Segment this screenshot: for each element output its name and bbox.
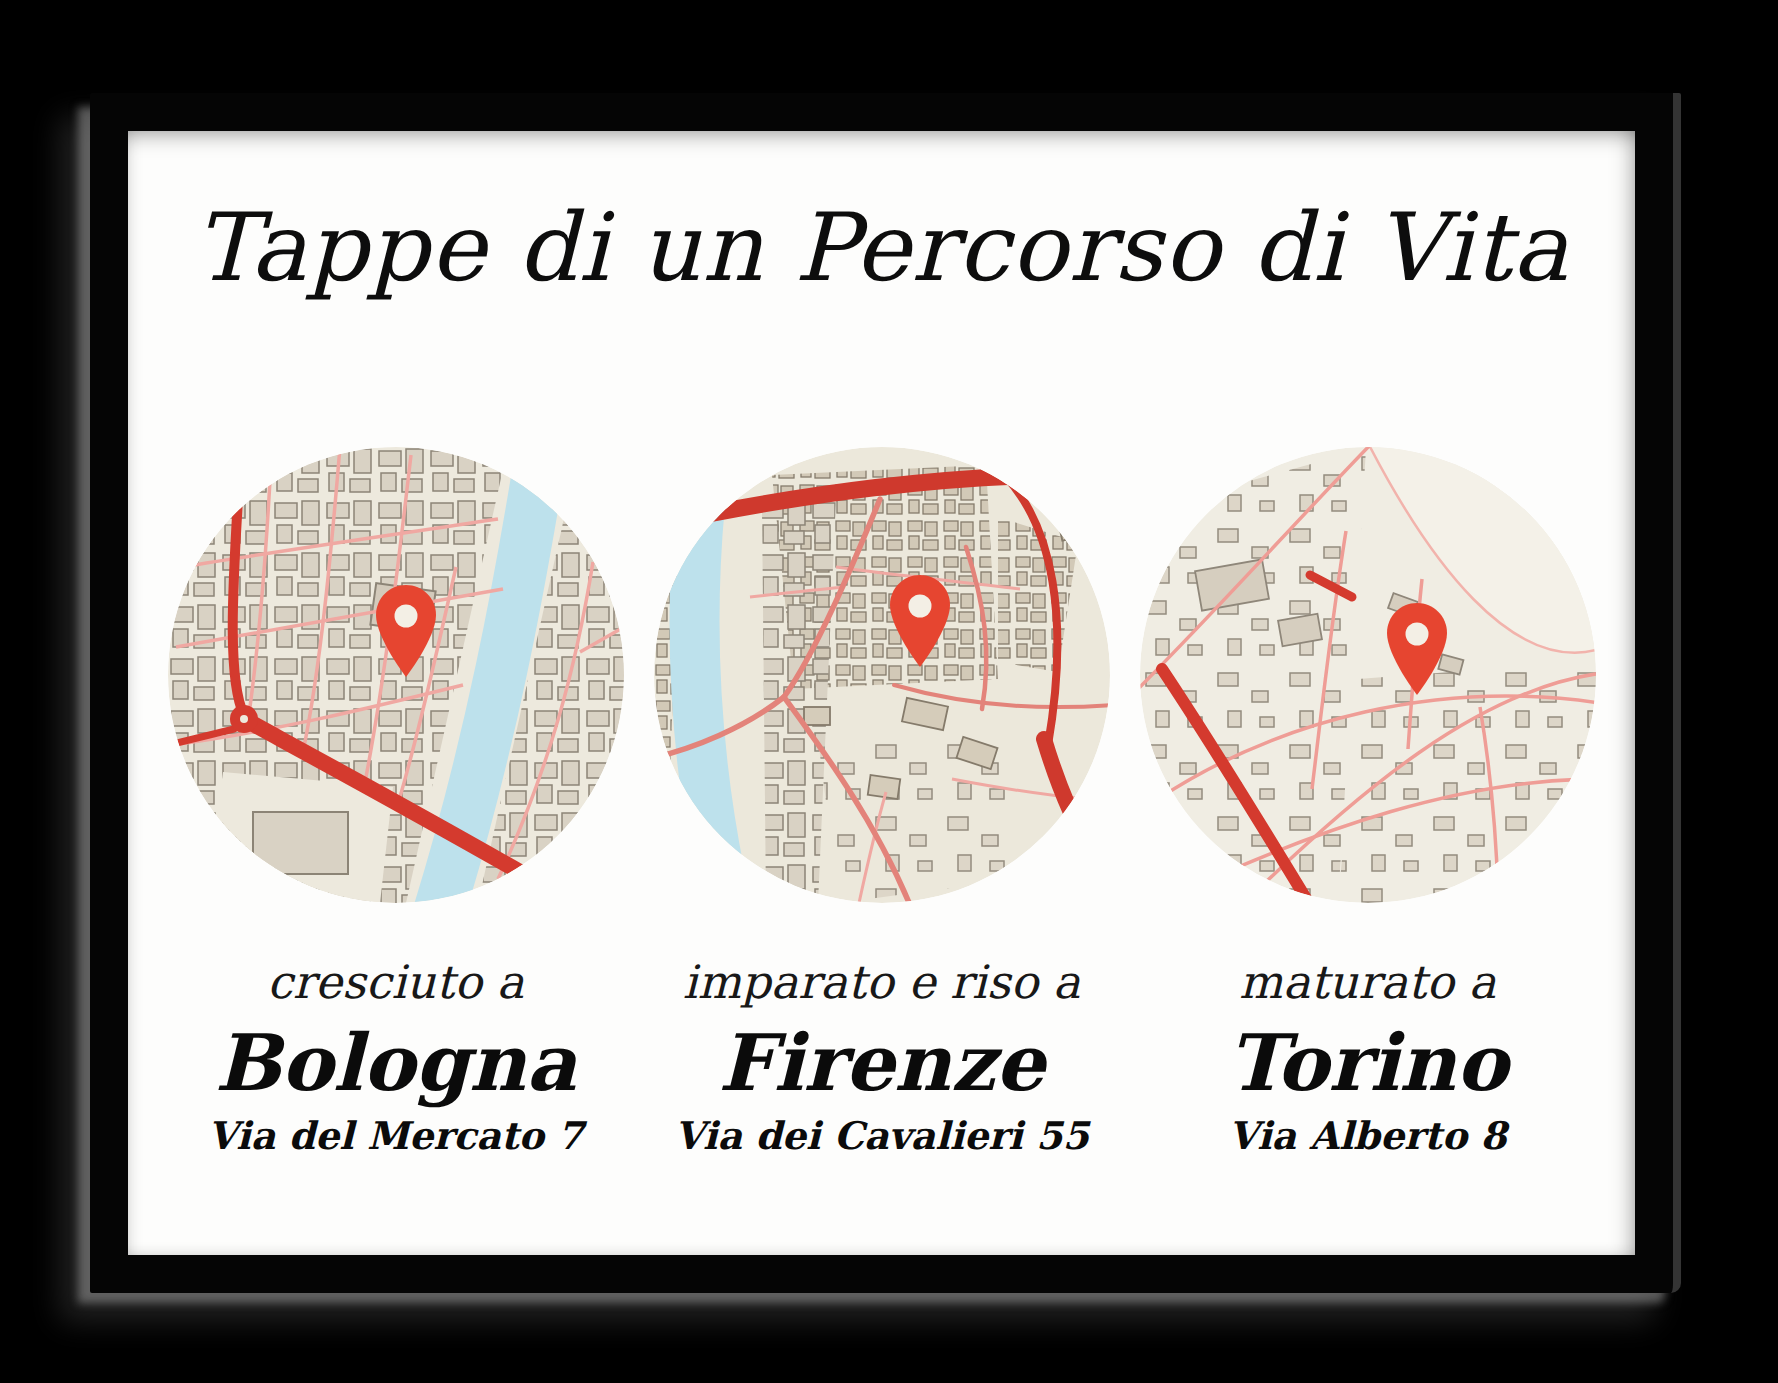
location-caption: cresciuto a <box>267 957 524 1008</box>
poster-title: Tappe di un Percorso di Vita <box>194 187 1569 309</box>
location-city: Bologna <box>215 1018 576 1108</box>
location-city: Torino <box>1227 1018 1508 1108</box>
picture-frame: Tappe di un Percorso di Vita <box>90 93 1681 1293</box>
city-map-3 <box>1140 447 1596 903</box>
location-address: Via dei Cavalieri 55 <box>674 1115 1089 1157</box>
location-city: Firenze <box>718 1018 1044 1108</box>
city-map-2 <box>654 447 1110 903</box>
map-circle-3 <box>1140 447 1596 903</box>
location-address: Via del Mercato 7 <box>207 1115 583 1157</box>
poster: Tappe di un Percorso di Vita <box>128 131 1635 1255</box>
location-column-3: maturato a Torino Via Alberto 8 <box>1140 447 1596 1157</box>
location-caption: imparato e riso a <box>683 957 1080 1008</box>
location-caption: maturato a <box>1239 957 1496 1008</box>
map-circle-1 <box>168 447 624 903</box>
location-column-1: cresciuto a Bologna Via del Mercato 7 <box>168 447 624 1157</box>
city-map-1 <box>168 447 624 903</box>
location-column-2: imparato e riso a Firenze Via dei Cavali… <box>654 447 1110 1157</box>
maps-row: cresciuto a Bologna Via del Mercato 7 <box>168 447 1596 1157</box>
location-address: Via Alberto 8 <box>1228 1115 1506 1157</box>
map-circle-2 <box>654 447 1110 903</box>
